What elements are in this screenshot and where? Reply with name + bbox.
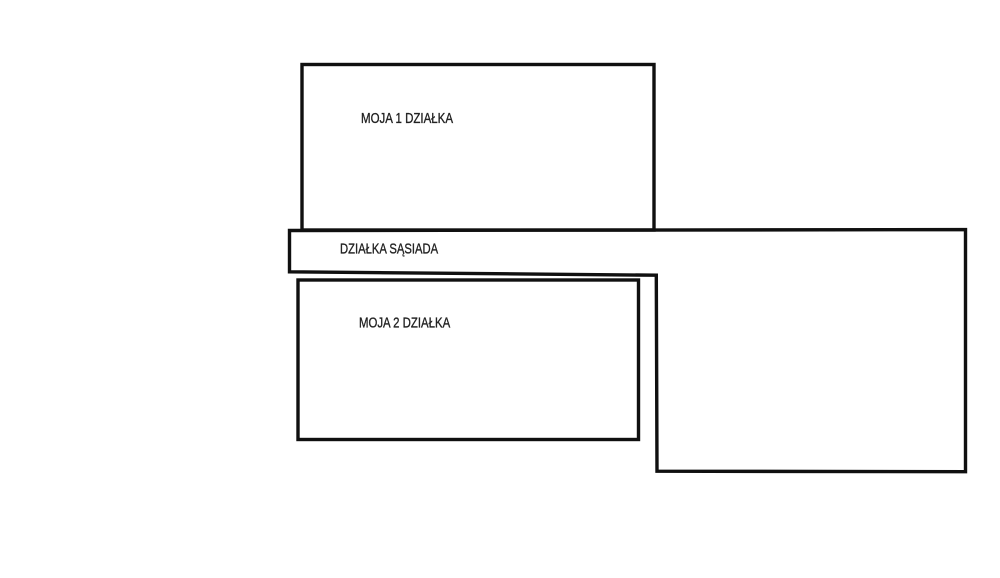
svg-text:DZIAŁKA SĄSIADA: DZIAŁKA SĄSIADA — [340, 240, 438, 257]
svg-text:MOJA 1 DZIAŁKA: MOJA 1 DZIAŁKA — [361, 110, 453, 127]
svg-text:MOJA 2 DZIAŁKA: MOJA 2 DZIAŁKA — [359, 314, 450, 331]
